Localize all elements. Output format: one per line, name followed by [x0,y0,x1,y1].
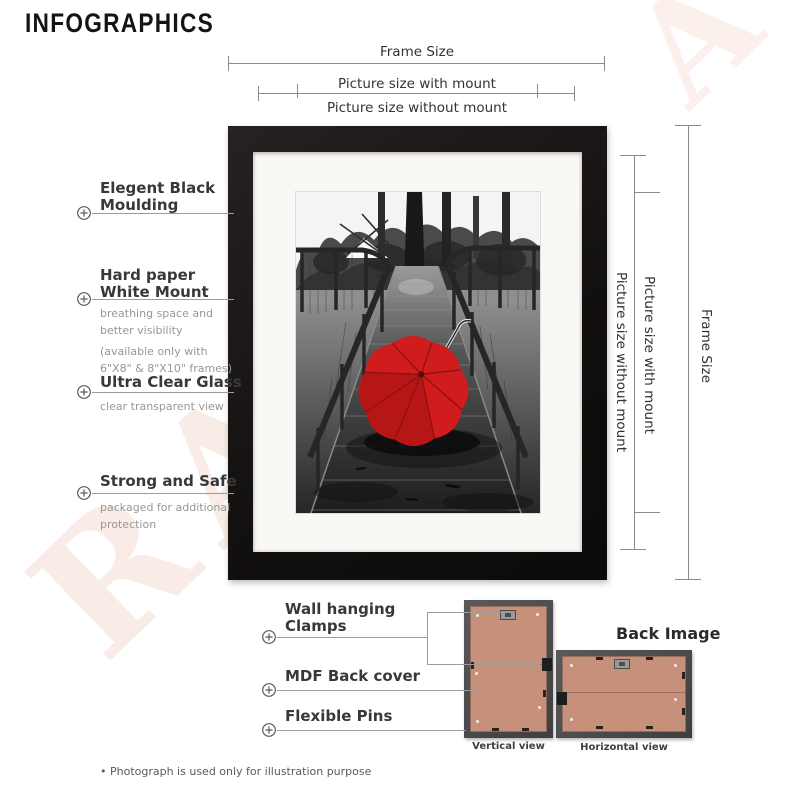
leader-line [427,612,428,665]
leader-line [427,664,540,665]
leader-line [92,213,234,214]
frame-back-horizontal-view [556,650,692,738]
dim-tick [604,56,605,71]
dim-top-with-mount-label: Picture size with mount [338,76,496,92]
dim-right-frame-size-label: Frame Size [698,309,714,383]
dim-tick [634,192,660,193]
flexible-pin [646,657,653,660]
pin-hole [475,672,478,675]
pin-hole [570,664,573,667]
dim-right-with-mount-label: Picture size with mount [641,276,657,434]
leader-line [92,493,234,494]
leader-line [427,612,503,613]
dim-tick [620,155,646,156]
flexible-pin [596,726,603,729]
dim-top-with-mount-line [258,93,575,94]
flexible-pin [543,690,546,697]
leader-line [277,637,427,638]
flexible-pin [596,657,603,660]
dim-right-without-mount-label: Picture size without mount [613,272,629,452]
dim-tick [634,512,660,513]
dim-tick [228,56,229,71]
flexible-pin [492,728,499,731]
mdf-back-board [562,656,686,732]
dim-tick [675,579,701,580]
dim-right-mount-line [634,155,635,550]
dim-tick [297,84,298,98]
horizontal-view-label: Horizontal view [556,742,692,753]
mdf-back-board [470,606,547,732]
dim-tick [675,125,701,126]
plus-circle-icon [76,384,92,400]
leader-line [277,690,477,691]
plus-circle-icon [76,291,92,307]
frame-back-vertical-view [464,600,553,738]
hanging-clamp [614,659,630,669]
back-image-heading: Back Image [616,624,720,643]
picture-frame [228,126,607,580]
infographic-page: RA A INFOGRAPHICS Frame Size Picture siz… [0,0,800,800]
dim-top-frame-size-line [228,63,605,64]
page-title: INFOGRAPHICS [25,8,214,39]
watermark-top-right: A [600,0,792,136]
side-clamp [542,658,552,671]
plus-circle-icon [76,485,92,501]
dim-tick [537,84,538,98]
side-clamp [557,692,567,705]
feature-safe-title: Strong and Safe [100,473,237,490]
leader-line [92,299,234,300]
plus-circle-icon [76,205,92,221]
pin-hole [538,706,541,709]
dim-right-frame-line [688,125,689,580]
plus-circle-icon [261,629,277,645]
feature-mount-title: Hard paper White Mount [100,267,209,301]
feature-glass-description: clear transparent view [100,399,224,416]
dim-tick [258,86,259,101]
leader-line [277,730,466,731]
pin-hole [476,614,479,617]
dim-top-frame-size-label: Frame Size [380,44,454,60]
white-mount [253,152,582,552]
feature-safe-description: packaged for additional protection [100,500,230,533]
flexible-pin [682,672,685,679]
back-feature-clamps-title: Wall hanging Clamps [285,601,395,635]
flexible-pin [522,728,529,731]
flexible-pin [646,726,653,729]
pin-hole [674,664,677,667]
dim-top-without-mount-label: Picture size without mount [327,100,507,116]
pin-hole [476,720,479,723]
back-feature-pins-title: Flexible Pins [285,708,392,725]
plus-circle-icon [261,682,277,698]
feature-glass-title: Ultra Clear Glass [100,374,242,391]
boardwalk-red-umbrella-photo [296,192,540,513]
footnote: • Photograph is used only for illustrati… [100,765,371,778]
back-feature-mdf-title: MDF Back cover [285,668,420,685]
pin-hole [674,698,677,701]
photo-window [296,192,540,513]
flexible-pin [682,708,685,715]
dim-tick [620,549,646,550]
pin-hole [536,613,539,616]
feature-moulding-title: Elegent Black Moulding [100,180,215,214]
pin-hole [570,718,573,721]
vertical-view-label: Vertical view [464,741,553,752]
plus-circle-icon [261,722,277,738]
dim-tick [574,86,575,101]
leader-line [92,392,234,393]
feature-mount-description: breathing space and better visibility [100,306,213,339]
board-seam [562,692,686,693]
